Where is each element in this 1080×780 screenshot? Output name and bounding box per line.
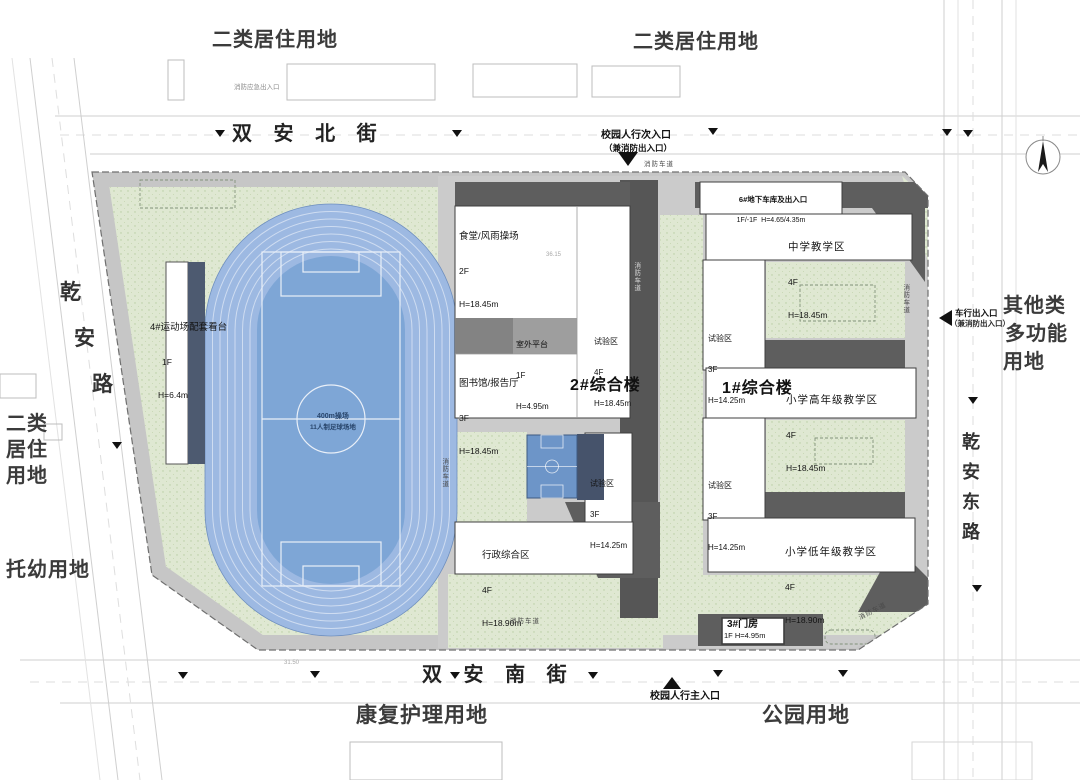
landuse-bottom: 康复护理用地	[356, 703, 488, 728]
south-entrance-label: 校园人行主入口	[650, 691, 720, 703]
east-entrance-label-2: （兼消防出入口）	[950, 319, 1010, 328]
street-east-char-4: 路	[962, 522, 980, 544]
spot-elevation: 36.15	[546, 252, 561, 259]
landuse-right-1: 其他类	[1003, 294, 1066, 318]
label-canteen: 食堂/风雨操场 2F H=18.45m	[459, 209, 519, 321]
label-complex-1: 1#综合楼	[722, 379, 793, 398]
landuse-top-left: 二类居住用地	[212, 28, 338, 52]
street-east-char-3: 东	[962, 492, 980, 514]
fire-lane-label-top: 消防车道	[644, 161, 674, 169]
label-terrace: 室外平台 1F H=4.95m	[516, 319, 549, 423]
street-east-char-1: 乾	[962, 432, 980, 454]
label-lab-right-lower: 试验区 3F H=14.25m	[708, 460, 745, 564]
street-north: 双 安 北 街	[232, 122, 385, 146]
street-east-char-2: 安	[962, 462, 980, 484]
landuse-top-right: 二类居住用地	[633, 30, 759, 54]
street-south: 双 安 南 街	[422, 663, 575, 687]
north-entrance-arrow	[618, 152, 638, 166]
label-library: 图书馆/报告厅 3F H=18.45m	[459, 356, 519, 468]
street-west-char-1: 乾	[60, 280, 81, 305]
label-lab-center-3f: 试验区 3F H=14.25m	[590, 458, 627, 562]
fire-lane-label-east: 消防车道	[901, 284, 909, 314]
north-entrance-label-2: （兼消防出入口）	[604, 143, 672, 153]
landuse-bottom-right: 公园用地	[762, 703, 850, 728]
fire-lane-label-west: 消防车道	[440, 458, 448, 488]
south-entrance-arrow	[663, 677, 681, 689]
label-grandstand: 4#运动场配套看台 1F H=6.4m	[150, 300, 260, 412]
label-gatehouse-name: 3#门房	[727, 619, 758, 631]
site-plan: 二类居住用地 二类居住用地 双 安 北 街 校园人行次入口 （兼消防出入口） 消…	[0, 0, 1080, 780]
landuse-left-bottom: 托幼用地	[6, 558, 90, 582]
street-west-char-3: 路	[92, 372, 113, 397]
fire-lane-label-corridor: 消防车道	[632, 262, 640, 292]
landuse-right-2: 多功能	[1005, 322, 1068, 346]
fire-lane-label-south: 消防车道	[510, 618, 540, 626]
label-complex-2: 2#综合楼	[570, 376, 641, 395]
label-primary-upper: 小学高年级教学区 4F H=18.45m	[786, 372, 878, 485]
nw-emergency-exit-label: 消防应急出入口	[234, 84, 280, 92]
label-lab-right-upper: 试验区 3F H=14.25m	[708, 313, 745, 417]
north-entrance-label-1: 校园人行次入口	[601, 130, 671, 142]
label-middle-school: 中学教学区 4F H=18.45m	[788, 219, 846, 332]
street-west-char-2: 安	[74, 326, 95, 351]
landuse-left-1: 二类	[6, 412, 48, 436]
spot-elevation: 31.50	[284, 660, 299, 667]
landuse-left-3: 用地	[6, 464, 48, 488]
east-entrance-label-1: 车行出入口	[955, 308, 998, 318]
landuse-left-2: 居住	[6, 438, 48, 462]
landuse-right-3: 用地	[1003, 350, 1045, 374]
label-track-field: 400m操场 11人制足球场地	[291, 400, 371, 434]
label-gatehouse-spec: 1F H=4.95m	[724, 631, 765, 640]
label-lab-center-4f: 试验区 4F H=18.45m	[594, 316, 631, 420]
north-arrow-icon	[1026, 136, 1060, 174]
